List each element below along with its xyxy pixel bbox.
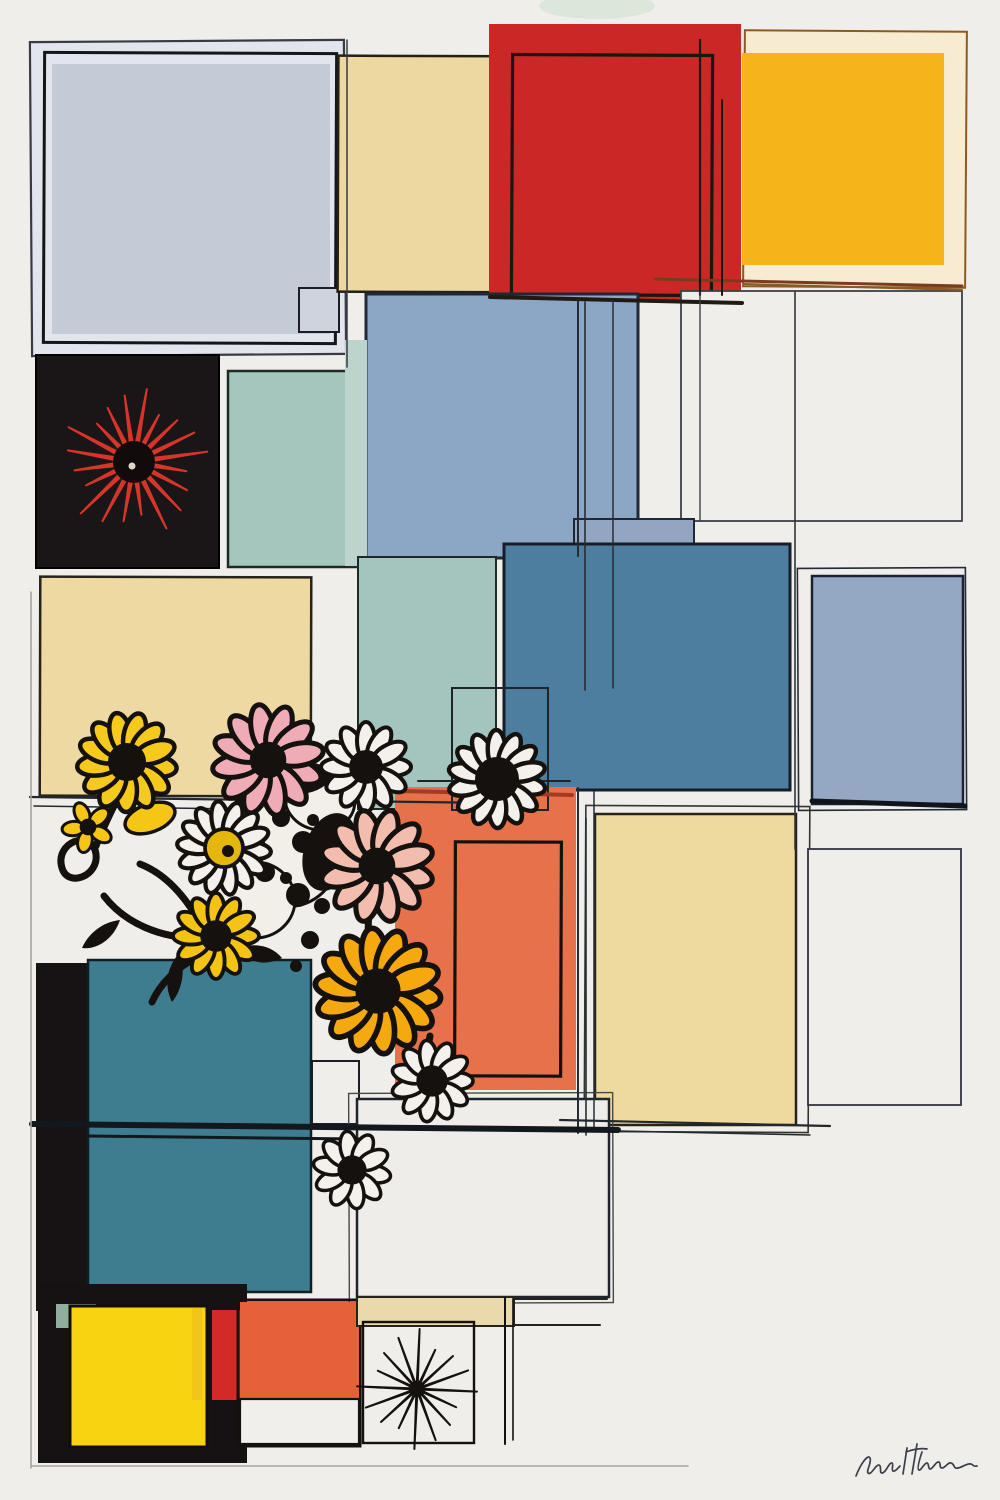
sage-light-strip: [345, 340, 367, 566]
black-strip-left: [36, 963, 88, 1311]
cream-mid-square: [595, 814, 796, 1125]
sage-square-row2: [228, 371, 365, 567]
red-sliver: [212, 1310, 240, 1400]
red-starburst-flower-highlight: [129, 463, 136, 470]
cow-spot-5: [314, 898, 330, 914]
cow-spot-14: [290, 960, 302, 972]
topleft-bluegray-square: [52, 64, 330, 334]
pink-daisy-lower-core: [361, 850, 393, 882]
steelblue-square: [504, 544, 790, 790]
cow-spot-4: [286, 883, 310, 907]
yellow-daisy-big-core: [358, 971, 398, 1011]
cow-spot-2: [292, 831, 314, 853]
white-bottom-square: [240, 1399, 359, 1444]
white-daisy-upper-core: [351, 752, 381, 782]
white-daisy-mid-core: [418, 1067, 446, 1095]
white-daisy-low-core: [339, 1157, 365, 1183]
white-outlined-square-right: [808, 849, 961, 1105]
pink-daisy-upper: [211, 703, 325, 817]
cow-spot-9: [280, 872, 292, 884]
topleft-corner-tab: [299, 288, 339, 332]
white-daisy-right-core: [477, 759, 517, 799]
red-square: [489, 24, 741, 300]
yellow-bottom-square: [70, 1306, 207, 1447]
bluegray-right-square: [812, 576, 963, 804]
artwork-frame: [0, 0, 1000, 1500]
white-daisy-yellow-core-swirl: [222, 845, 234, 857]
orange-bottom-square: [240, 1302, 359, 1399]
pink-daisy-lower: [319, 808, 435, 924]
red-starburst-flower-core: [113, 441, 155, 483]
yellow-sunflower-core: [110, 745, 144, 779]
yellow-daisy-small-core: [202, 922, 230, 950]
yellow-bud-core: [81, 820, 95, 834]
cow-spot-10: [307, 814, 319, 826]
yellow-square: [742, 53, 944, 265]
pink-daisy-upper-core: [252, 744, 284, 776]
yellow-sliver: [192, 1308, 202, 1400]
white-outlined-square-row2: [681, 291, 962, 521]
artwork-canvas: [0, 0, 1000, 1500]
cow-spot-12: [301, 931, 319, 949]
black-dandelion-core: [409, 1381, 425, 1397]
